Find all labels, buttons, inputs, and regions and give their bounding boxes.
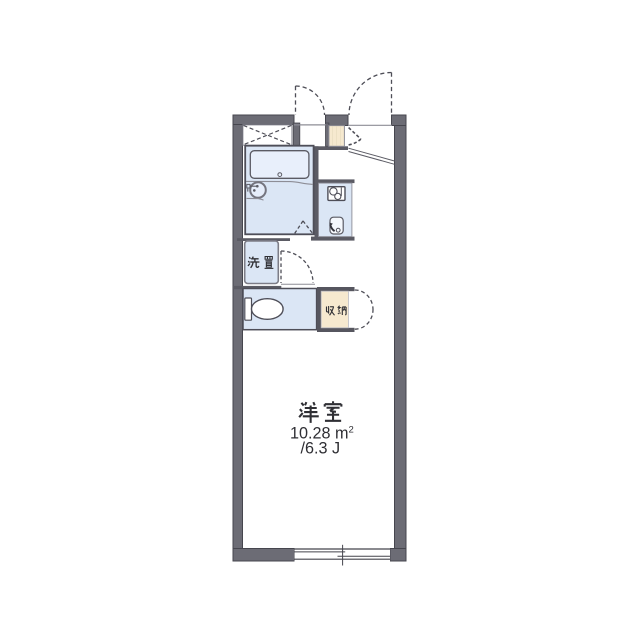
svg-text:/6.3 J: /6.3 J bbox=[301, 440, 341, 458]
